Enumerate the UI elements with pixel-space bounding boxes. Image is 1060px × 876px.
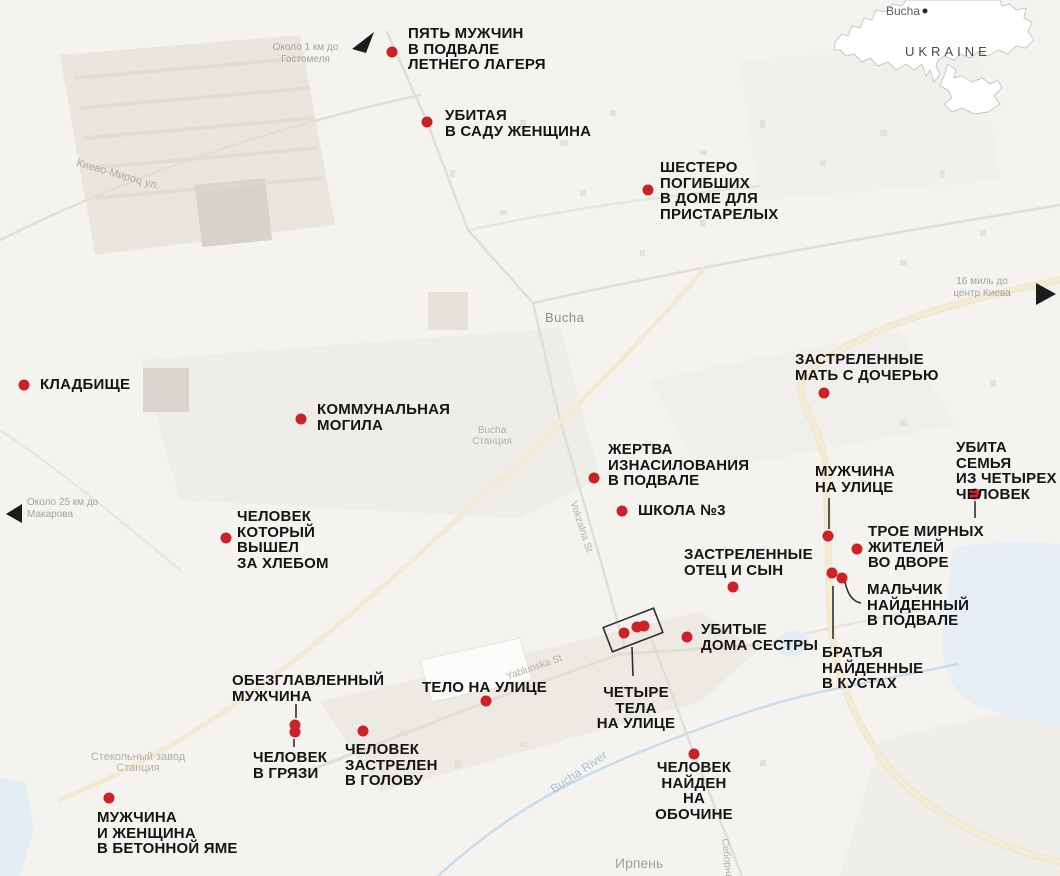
marker-father-son-shot <box>728 582 739 593</box>
marker-mother-daughter-shot <box>819 388 830 399</box>
marker-sisters-killed-home <box>682 632 693 643</box>
label-boy-found-basement: МАЛЬЧИК НАЙДЕННЫЙ В ПОДВАЛЕ <box>867 582 969 629</box>
label-man-woman-concrete-pit: МУЖЧИНА И ЖЕНЩИНА В БЕТОННОЙ ЯМЕ <box>97 810 238 857</box>
label-sisters-killed-home: УБИТЫЕ ДОМА СЕСТРЫ <box>701 622 818 653</box>
marker-man-went-for-bread <box>221 533 232 544</box>
inset-region-label: UKRAINE <box>905 44 991 59</box>
label-three-civilians-yard: ТРОЕ МИРНЫХ ЖИТЕЛЕЙ ВО ДВОРЕ <box>868 524 984 571</box>
distance-note-hostomel: Около 1 км до Гостомеля <box>253 42 358 66</box>
label-six-dead-nursing-home: ШЕСТЕРО ПОГИБШИХ В ДОМЕ ДЛЯ ПРИСТАРЕЛЫХ <box>660 160 779 222</box>
bucha-city-dot <box>923 9 928 14</box>
place-label-irpin: Ирпень <box>615 858 663 869</box>
place-label-glass-factory-station: Стекольный завод Станция <box>78 752 198 774</box>
label-cemetery: КЛАДБИЩЕ <box>40 377 130 393</box>
label-school-no3: ШКОЛА №3 <box>638 503 726 519</box>
ukraine-inset-map <box>830 0 1060 118</box>
label-woman-killed-garden: УБИТАЯ В САДУ ЖЕНЩИНА <box>445 108 591 139</box>
marker-six-dead-nursing-home <box>643 185 654 196</box>
crimea-outline <box>940 64 1002 114</box>
marker-man-woman-concrete-pit <box>104 793 115 804</box>
marker-three-civilians-yard <box>852 544 863 555</box>
marker-four-bodies-3 <box>639 621 650 632</box>
distance-note-makarov: Около 25 км до Макарова <box>27 497 98 521</box>
label-rape-victim-basement: ЖЕРТВА ИЗНАСИЛОВАНИЯ В ПОДВАЛЕ <box>608 442 749 489</box>
marker-body-on-street <box>481 696 492 707</box>
label-family-of-four-killed: УБИТА СЕМЬЯ ИЗ ЧЕТЫРЕХ ЧЕЛОВЕК <box>956 440 1060 502</box>
ukraine-outline <box>834 0 1034 82</box>
marker-beheaded-mud-cluster-2 <box>290 727 301 738</box>
label-beheaded-man: ОБЕЗГЛАВЛЕННЫЙ МУЖЧИНА <box>232 673 384 704</box>
label-man-found-roadside: ЧЕЛОВЕК НАЙДЕН НА ОБОЧИНЕ <box>648 760 740 822</box>
bucha-incidents-map: Bucha UKRAINE Bucha Bucha Станция Киево-… <box>0 0 1060 876</box>
label-brothers-found-bushes: БРАТЬЯ НАЙДЕННЫЕ В КУСТАХ <box>822 645 923 692</box>
marker-five-men-camp-basement <box>387 47 398 58</box>
marker-man-on-street <box>823 531 834 542</box>
marker-brothers-boy-cluster-2 <box>837 573 848 584</box>
marker-rape-victim-basement <box>589 473 600 484</box>
marker-man-found-roadside <box>689 749 700 760</box>
label-father-son-shot: ЗАСТРЕЛЕННЫЕ ОТЕЦ И СЫН <box>684 547 813 578</box>
marker-communal-grave <box>296 414 307 425</box>
label-man-on-street: МУЖЧИНА НА УЛИЦЕ <box>815 464 895 495</box>
inset-city-label: Bucha <box>886 4 920 18</box>
marker-four-bodies-1 <box>619 628 630 639</box>
marker-cemetery <box>19 380 30 391</box>
place-label-bucha-town: Bucha <box>545 312 584 323</box>
label-five-men-camp-basement: ПЯТЬ МУЖЧИН В ПОДВАЛЕ ЛЕТНЕГО ЛАГЕРЯ <box>408 26 546 73</box>
marker-school-no3 <box>617 506 628 517</box>
label-man-went-for-bread: ЧЕЛОВЕК КОТОРЫЙ ВЫШЕЛ ЗА ХЛЕБОМ <box>237 509 329 571</box>
marker-woman-killed-garden <box>422 117 433 128</box>
marker-man-shot-in-head <box>358 726 369 737</box>
label-body-on-street: ТЕЛО НА УЛИЦЕ <box>422 680 547 696</box>
label-communal-grave: КОММУНАЛЬНАЯ МОГИЛА <box>317 402 450 433</box>
label-man-in-mud: ЧЕЛОВЕК В ГРЯЗИ <box>253 750 327 781</box>
place-label-bucha-station: Bucha Станция <box>462 425 522 447</box>
label-man-shot-in-head: ЧЕЛОВЕК ЗАСТРЕЛЕН В ГОЛОВУ <box>345 742 438 789</box>
label-mother-daughter-shot: ЗАСТРЕЛЕННЫЕ МАТЬ С ДОЧЕРЬЮ <box>795 352 939 383</box>
distance-note-kyiv: 16 миль до центр Киева <box>936 276 1028 300</box>
label-four-bodies-street: ЧЕТЫРЕ ТЕЛА НА УЛИЦЕ <box>583 685 689 732</box>
